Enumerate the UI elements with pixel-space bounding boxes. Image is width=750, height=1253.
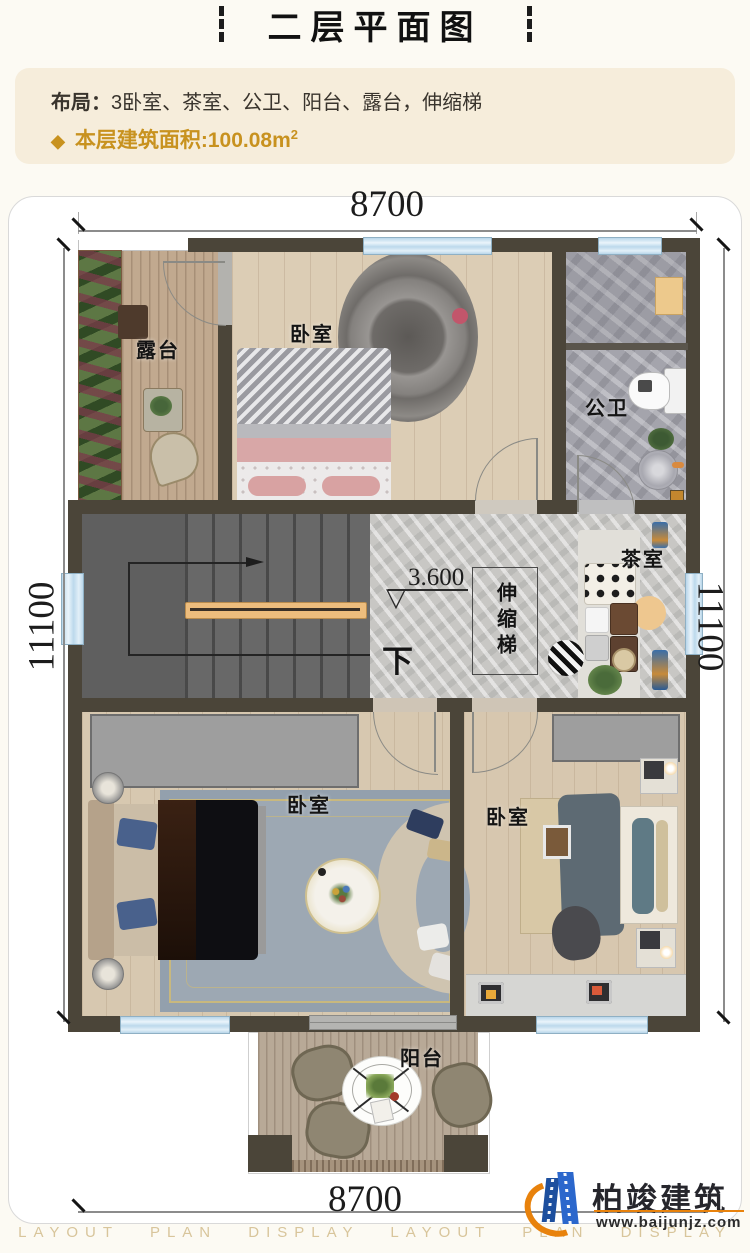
door-bathroom-leaf xyxy=(577,455,579,512)
balcony-table-fruit xyxy=(390,1092,399,1101)
sofa-cushion-1 xyxy=(416,923,450,952)
wall-mid-lower-a xyxy=(68,698,373,712)
door-bedroom-left-leaf xyxy=(434,712,436,772)
bed-left-foot-edge xyxy=(258,806,266,954)
bed-left-pillow-blue-2 xyxy=(116,897,158,930)
bed-top-band xyxy=(237,424,391,438)
dim-bottom-value: 8700 xyxy=(265,1178,465,1221)
balcony-bottom-strip xyxy=(292,1160,444,1172)
elevation-value: 3.600 xyxy=(408,564,464,592)
bath-plant xyxy=(648,428,674,450)
brand-logo-icon xyxy=(524,1170,588,1230)
info-area-line: ◆本层建筑面积:100.08m2 xyxy=(51,124,298,154)
ladder-label: 伸缩梯 xyxy=(491,582,520,660)
tea-chair-white xyxy=(585,607,609,633)
bedside-lamp-bottom xyxy=(92,958,124,990)
stair-walkline-arrow xyxy=(246,557,264,567)
tea-plant xyxy=(588,665,622,695)
door-bedroom-right-leaf xyxy=(472,712,474,772)
bedroom-left-wardrobe xyxy=(90,714,359,788)
nightstand-bottom-lamp xyxy=(660,946,673,959)
terrace-plant xyxy=(150,396,172,416)
balcony-stub-left xyxy=(248,1135,292,1172)
wall-bath-inner xyxy=(566,343,688,350)
room-label-tea-room: 茶室 xyxy=(621,543,665,572)
dim-left-value: 11100 xyxy=(21,567,64,687)
info-layout-value: 3卧室、茶室、公卫、阳台、露台，伸缩梯 xyxy=(111,92,482,114)
bed-right-pillow-tan xyxy=(656,820,668,912)
wall-mid-upper-a xyxy=(68,500,475,514)
window-bedroom-right-bottom xyxy=(536,1016,648,1034)
desk-item-left-accent xyxy=(486,990,496,999)
window-bedroom-left-bottom xyxy=(120,1016,230,1034)
door-bedroom-top-leaf xyxy=(536,438,538,500)
brand-logo: 柏竣建筑 www.baijunjz.com xyxy=(524,1166,746,1234)
balcony-sliding-door xyxy=(309,1015,457,1030)
wall-mid-upper-c xyxy=(635,500,688,514)
floor-plan-page: 二层平面图 布局：3卧室、茶室、公卫、阳台、露台，伸缩梯 ◆本层建筑面积:100… xyxy=(0,0,750,1253)
balcony-table-paper xyxy=(370,1098,394,1124)
stair-walkline-bottom xyxy=(128,654,370,656)
wall-mid-upper-b xyxy=(537,500,577,514)
dim-top-value: 8700 xyxy=(287,183,487,226)
door-terrace-leaf xyxy=(163,261,225,263)
window-bathroom-top xyxy=(598,237,662,255)
stair-walkline-top xyxy=(128,562,246,564)
bed-left-duvet-black xyxy=(196,800,258,960)
wall-bed-bath-divider xyxy=(552,252,566,502)
info-area-sup: 2 xyxy=(291,127,298,142)
bed-right-pillow-blue xyxy=(632,818,654,914)
nightstand-top-lamp xyxy=(664,762,677,775)
down-label: 下 xyxy=(382,636,415,681)
stair-walkline-vert xyxy=(128,562,130,655)
bed-top-headboard xyxy=(237,348,391,424)
brand-url: www.baijunjz.com xyxy=(596,1214,741,1231)
bath-sink xyxy=(638,450,678,490)
brand-url-rule xyxy=(594,1210,744,1212)
bedside-lamp-top xyxy=(92,772,124,804)
terrace-flowerbed xyxy=(78,250,122,507)
dim-right-value: 11100 xyxy=(689,567,732,687)
wall-mid-lower-b xyxy=(437,698,472,712)
bedroom-right-wardrobe xyxy=(552,714,680,762)
bed-left-pillow-blue-1 xyxy=(116,817,158,850)
stair-handrail-line xyxy=(190,608,360,611)
threshold-bedroom-left-door xyxy=(373,698,437,712)
coffee-table-flowers xyxy=(328,882,354,906)
room-label-terrace: 露台 xyxy=(136,334,180,363)
toilet-lid-detail xyxy=(638,380,652,392)
room-label-bedroom-top: 卧室 xyxy=(290,318,334,347)
striped-round-rug xyxy=(548,640,584,676)
desk-item-right-accent xyxy=(592,986,602,995)
dim-top-line xyxy=(78,230,697,232)
info-layout-label: 布局： xyxy=(51,92,111,114)
bedroom-top-rug-pillow xyxy=(452,308,468,324)
bath-shelf xyxy=(655,277,683,315)
tea-decor-bottom xyxy=(652,650,668,690)
window-bedroom-top xyxy=(363,237,492,255)
bed-left-headboard xyxy=(88,800,114,960)
bed-right-picture xyxy=(543,825,571,859)
room-label-bedroom-right: 卧室 xyxy=(486,801,530,830)
elevation-symbol: ▽ xyxy=(386,584,406,610)
ladder-box: 伸缩梯 xyxy=(472,567,538,675)
coffee-table-dot xyxy=(318,868,326,876)
threshold-bedroom-right-door xyxy=(472,698,537,712)
wall-mid-lower-c xyxy=(537,698,700,712)
page-header: 二层平面图 xyxy=(0,0,750,48)
title-dash-right-icon xyxy=(527,6,532,42)
info-area-text: 本层建筑面积:100.08m xyxy=(75,129,291,152)
nightstand-bottom-laptop xyxy=(640,931,660,949)
nightstand-top-laptop xyxy=(644,761,664,779)
bed-left-runner-brown xyxy=(158,800,196,960)
page-title: 二层平面图 xyxy=(268,0,483,49)
room-label-balcony: 阳台 xyxy=(400,1042,444,1071)
tea-chair-gray xyxy=(585,635,609,661)
room-label-bedroom-left: 卧室 xyxy=(287,789,331,818)
diamond-icon: ◆ xyxy=(51,131,65,151)
info-layout-line: 布局：3卧室、茶室、公卫、阳台、露台，伸缩梯 xyxy=(51,86,482,115)
wall-terrace-divider xyxy=(218,325,232,512)
threshold-bedroom-top-door xyxy=(475,500,537,514)
wall-bedrooms-divider xyxy=(450,712,464,1016)
bed-top-blanket-pink xyxy=(237,438,391,462)
tea-chair-brown-1 xyxy=(610,603,638,635)
balcony-stub-right xyxy=(444,1135,488,1172)
title-dash-left-icon xyxy=(219,6,224,42)
bath-faucet xyxy=(672,462,684,468)
bed-top-pillow-1 xyxy=(248,476,306,496)
room-label-bathroom: 公卫 xyxy=(585,392,629,421)
bed-top-pillow-2 xyxy=(322,476,380,496)
brand-name: 柏竣建筑 xyxy=(592,1174,728,1219)
info-box: 布局：3卧室、茶室、公卫、阳台、露台，伸缩梯 ◆本层建筑面积:100.08m2 xyxy=(15,68,735,164)
